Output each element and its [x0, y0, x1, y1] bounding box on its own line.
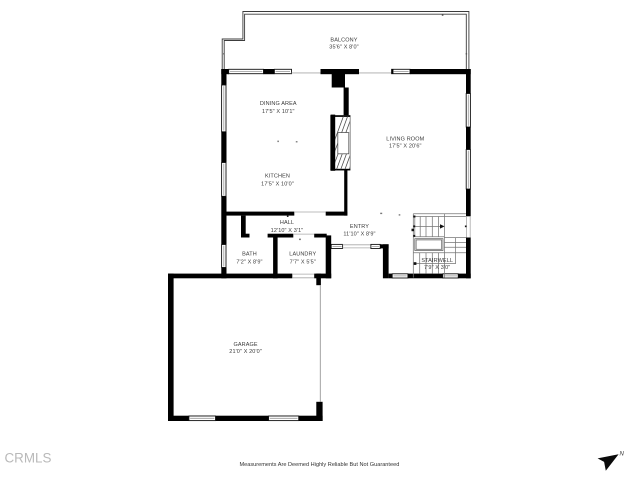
- svg-text:17'5" X 20'6": 17'5" X 20'6": [389, 144, 422, 150]
- svg-text:LIVING ROOM: LIVING ROOM: [386, 136, 424, 142]
- svg-text:35'6" X 8'0": 35'6" X 8'0": [329, 44, 358, 50]
- svg-text:CRMLS: CRMLS: [5, 450, 52, 465]
- svg-text:LAUNDRY: LAUNDRY: [289, 251, 316, 257]
- svg-text:7'2" X 8'9": 7'2" X 8'9": [236, 259, 262, 265]
- svg-text:STAIRWELL: STAIRWELL: [421, 258, 453, 264]
- svg-text:17'5" X 10'0": 17'5" X 10'0": [261, 182, 294, 188]
- svg-text:BATH: BATH: [242, 251, 257, 257]
- svg-text:DINING AREA: DINING AREA: [260, 101, 297, 107]
- svg-text:7'9" X 3'0": 7'9" X 3'0": [424, 265, 450, 271]
- svg-text:KITCHEN: KITCHEN: [265, 173, 290, 179]
- svg-text:GARAGE: GARAGE: [233, 342, 257, 348]
- svg-text:11'10" X 8'9": 11'10" X 8'9": [343, 231, 375, 237]
- svg-text:HALL: HALL: [280, 220, 294, 226]
- svg-text:21'0" X 20'0": 21'0" X 20'0": [229, 349, 262, 355]
- svg-text:17'5" X 10'1": 17'5" X 10'1": [262, 109, 295, 115]
- svg-text:N: N: [620, 452, 625, 458]
- svg-text:Measurements Are Deemed Highly: Measurements Are Deemed Highly Reliable …: [239, 462, 399, 468]
- svg-text:12'10" X 3'1": 12'10" X 3'1": [271, 228, 304, 234]
- svg-text:ENTRY: ENTRY: [350, 224, 369, 230]
- svg-text:BALCONY: BALCONY: [330, 38, 357, 44]
- svg-text:7'7" X 5'5": 7'7" X 5'5": [290, 259, 316, 265]
